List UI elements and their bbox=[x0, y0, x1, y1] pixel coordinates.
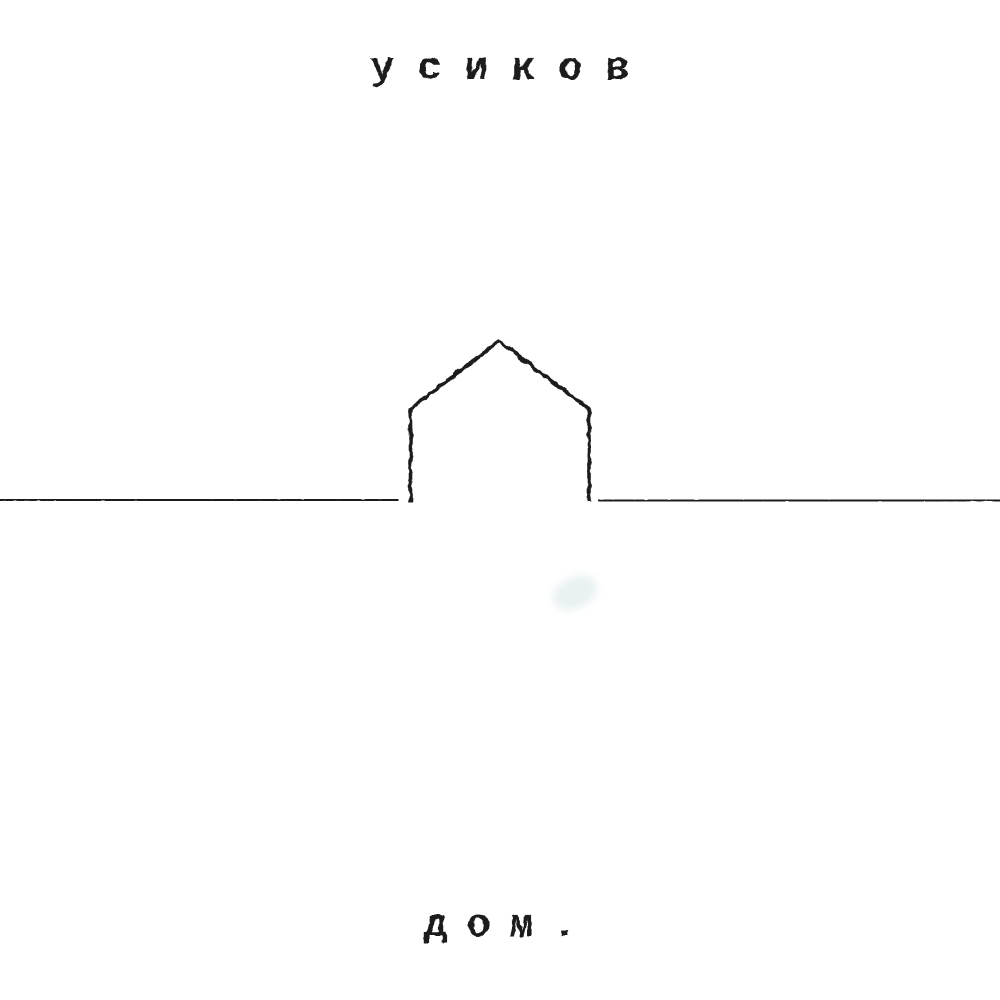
house-silhouette bbox=[411, 341, 590, 502]
ground-line-right bbox=[598, 500, 1000, 501]
ground-line-left bbox=[0, 500, 399, 501]
album-title: дом. bbox=[0, 907, 1000, 947]
house-outline-icon bbox=[0, 0, 1000, 1000]
album-cover: усиков дом. bbox=[0, 0, 1000, 1000]
